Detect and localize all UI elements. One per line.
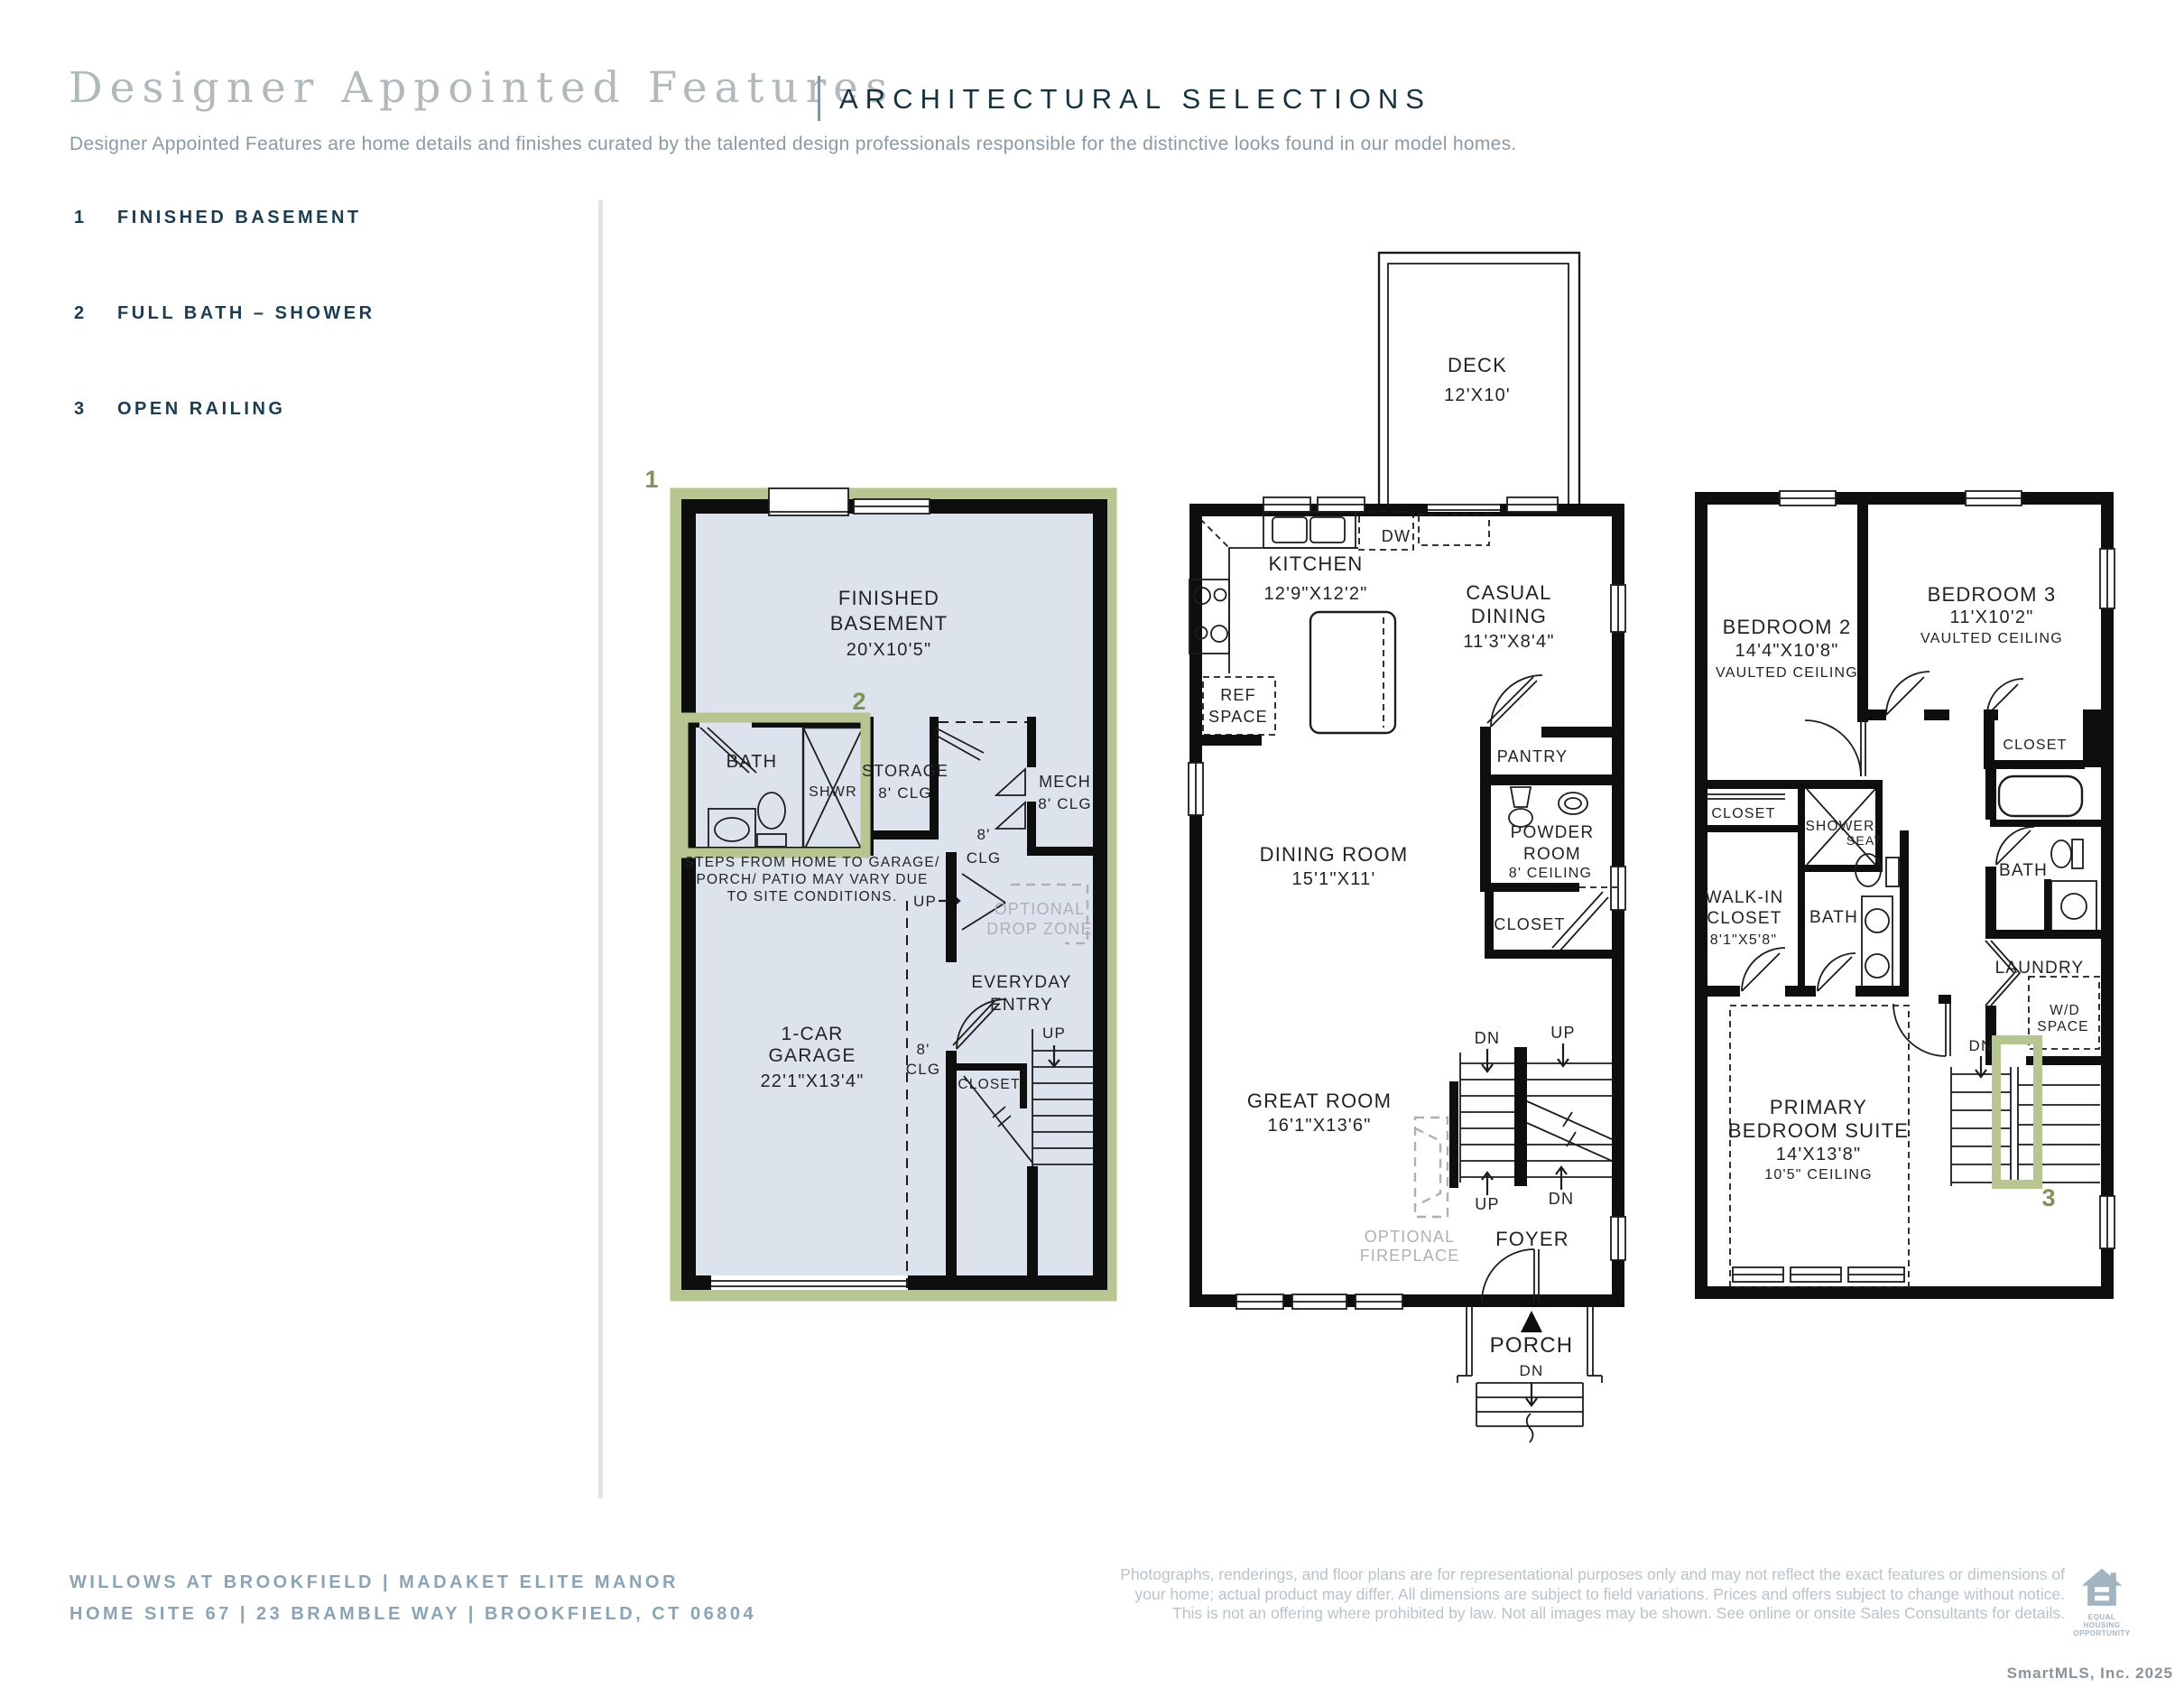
highlight-badge-3: 3 [2041, 1184, 2055, 1211]
room-label: DECK [1448, 354, 1507, 376]
appliance-label: DW [1382, 527, 1411, 545]
community-name: WILLOWS AT BROOKFIELD | MADAKET ELITE MA… [69, 1572, 679, 1593]
room-label: DINING [1471, 605, 1547, 627]
ceiling-label: 8' [916, 1041, 930, 1058]
first-floor-plan: DECK 12'X10' DW KITCHEN 12'9"X12'2" REF … [1173, 235, 1643, 1444]
disclaimer-line: your home; actual product may differ. Al… [1108, 1585, 2065, 1605]
plan-note: STEPS FROM HOME TO GARAGE/ [685, 855, 940, 870]
optional-label: OPTIONAL [1365, 1228, 1456, 1246]
room-label: BATH [726, 752, 778, 772]
room-label: BASEMENT [830, 612, 949, 635]
room-label: ROOM [1523, 845, 1581, 864]
mls-credit: SmartMLS, Inc. 2025 [2007, 1665, 2173, 1683]
room-label: CLOSET [1707, 909, 1781, 928]
ceiling-label: CLG [906, 1061, 941, 1078]
feature-number: 1 [74, 208, 117, 228]
equal-housing-logo: EQUAL HOUSING OPPORTUNITY [2070, 1567, 2133, 1637]
room-label: EVERYDAY [971, 973, 1071, 992]
feature-item-2: 2FULL BATH – SHOWER [74, 303, 375, 324]
feature-item-1: 1FINISHED BASEMENT [74, 208, 362, 228]
appliance-label: SPACE [2037, 1019, 2088, 1034]
room-label: BEDROOM 2 [1723, 616, 1852, 638]
room-dimension: 16'1"X13'6" [1267, 1116, 1371, 1136]
disclaimer-line: This is not an offering where prohibited… [1108, 1604, 2065, 1624]
second-floor-plan: BEDROOM 2 14'4"X10'8" VAULTED CEILING BE… [1679, 478, 2130, 1309]
ceiling-label: 8' [976, 826, 990, 843]
room-dimension: 12'9"X12'2" [1263, 584, 1367, 604]
feature-label: FINISHED BASEMENT [117, 208, 362, 227]
room-label: CLOSET [2003, 737, 2067, 753]
room-dimension: 14'X13'8" [1776, 1145, 1862, 1164]
stair-label: UP [1550, 1024, 1575, 1042]
eho-label: EQUAL HOUSING [2070, 1613, 2133, 1629]
ceiling-label: CLG [967, 849, 1002, 867]
room-label: ENTRY [990, 996, 1053, 1015]
north-arrow-icon [1521, 1311, 1542, 1332]
garage-door [711, 1275, 908, 1290]
room-label: FINISHED [838, 587, 939, 609]
room-label: CLOSET [1711, 806, 1775, 821]
room-label: STORAGE [862, 762, 949, 780]
appliance-label: W/D [2050, 1003, 2080, 1018]
appliance-label: SPACE [1208, 708, 1268, 726]
room-dimension: 20'X10'5" [847, 640, 932, 660]
room-dimension: 11'X10'2" [1949, 607, 2033, 627]
room-dimension: 12'X10' [1444, 385, 1511, 405]
room-label: BEDROOM 3 [1928, 583, 2057, 606]
room-label: BATH [1809, 908, 1858, 927]
room-label: MECH [1039, 773, 1091, 791]
stair-label: UP [913, 893, 937, 910]
section-title: ARCHITECTURAL SELECTIONS [839, 83, 1431, 116]
ceiling-label: VAULTED CEILING [1716, 665, 1858, 681]
room-label: WALK-IN [1706, 888, 1784, 907]
stair-label: DN [1549, 1190, 1574, 1208]
room-label: SHOWER [1806, 819, 1875, 834]
highlight-badge-1: 1 [644, 466, 658, 493]
room-label: PRIMARY [1770, 1096, 1867, 1118]
room-label: SHWR [809, 784, 857, 800]
room-label: BATH [1999, 861, 2048, 880]
feature-number: 3 [74, 399, 117, 420]
feature-item-3: 3OPEN RAILING [74, 399, 285, 420]
room-dimension: 15'1"X11' [1291, 869, 1375, 889]
legal-disclaimer: Photographs, renderings, and floor plans… [1108, 1565, 2065, 1624]
plan-note: PORCH/ PATIO MAY VARY DUE [696, 872, 928, 887]
room-dimension: 8' CLG [1038, 795, 1092, 812]
room-label: CASUAL [1466, 581, 1551, 604]
optional-label: FIREPLACE [1360, 1247, 1460, 1265]
ceiling-label: VAULTED CEILING [1920, 631, 2063, 646]
ceiling-label: 8' CEILING [1509, 866, 1592, 881]
exterior-walls [1196, 510, 1618, 1301]
room-label: 1-CAR [781, 1024, 843, 1044]
optional-label: OPTIONAL [995, 900, 1086, 918]
room-dimension: 11'3"X8'4" [1463, 632, 1554, 652]
page-subtitle: Designer Appointed Features are home det… [69, 134, 1517, 155]
page-title: Designer Appointed Features [69, 63, 894, 113]
room-dimension: 8'1"X5'8" [1710, 932, 1778, 948]
ceiling-label: 10'5" CEILING [1764, 1167, 1873, 1183]
plan-note: TO SITE CONDITIONS. [727, 889, 898, 904]
room-label: CLOSET [1494, 915, 1565, 933]
room-label: PORCH [1490, 1333, 1574, 1358]
stair-label: DN [1475, 1029, 1500, 1047]
room-dimension: 22'1"X13'4" [760, 1071, 864, 1091]
room-label: GARAGE [768, 1045, 856, 1066]
stair-label: UP [1475, 1195, 1499, 1213]
room-label: POWDER [1511, 823, 1595, 842]
room-label: DINING ROOM [1260, 843, 1409, 866]
eho-label: OPPORTUNITY [2070, 1629, 2133, 1637]
disclaimer-line: Photographs, renderings, and floor plans… [1108, 1565, 2065, 1585]
feature-number: 2 [74, 303, 117, 324]
room-label: BEDROOM SUITE [1728, 1119, 1909, 1142]
feature-label: OPEN RAILING [117, 399, 285, 419]
appliance-label: REF [1220, 686, 1256, 704]
feature-label: FULL BATH – SHOWER [117, 303, 375, 323]
equal-housing-house-icon [2078, 1567, 2125, 1609]
title-divider [818, 76, 820, 121]
room-label: SEAT [1846, 833, 1883, 848]
highlight-badge-2: 2 [852, 688, 865, 715]
room-label: GREAT ROOM [1247, 1090, 1392, 1112]
room-label: FOYER [1495, 1228, 1569, 1250]
home-site-address: HOME SITE 67 | 23 BRAMBLE WAY | BROOKFIE… [69, 1604, 756, 1625]
room-dimension: 14'4"X10'8" [1735, 641, 1838, 661]
vertical-divider [598, 200, 603, 1498]
room-label: PANTRY [1497, 747, 1569, 765]
basement-floor-plan: 1 FINISHED BASEMENT 20'X10'5" BATH SHWR … [632, 451, 1137, 1318]
stair-label: DN [1969, 1037, 1994, 1054]
room-dimension: 8' CLG [878, 784, 932, 802]
stair-label: DN [1520, 1362, 1544, 1379]
deck-outline [1379, 253, 1579, 505]
stair-label: UP [1042, 1025, 1066, 1042]
optional-label: DROP ZONE [986, 920, 1092, 938]
room-label: KITCHEN [1269, 552, 1364, 575]
